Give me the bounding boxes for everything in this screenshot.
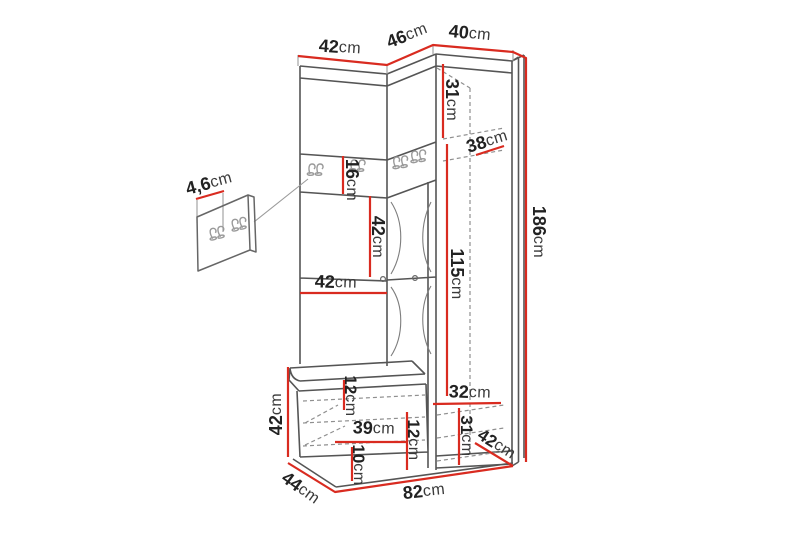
- dimension-labels: 42cm 46cm 40cm 31cm 38cm 186cm 16cm 42cm…: [184, 18, 549, 508]
- dim-label-bench-depth: 44cm: [278, 467, 324, 508]
- dim-label-bench-inner-width: 39cm: [352, 417, 395, 438]
- dim-label-seat-thickness: 12cm: [342, 375, 361, 416]
- dim-label-bench-shelf-height: 10cm: [350, 444, 369, 485]
- dim-label-hook-panel-thickness: 4,6cm: [184, 167, 235, 199]
- dim-label-total-height: 186cm: [529, 206, 549, 258]
- dim-label-total-width: 82cm: [402, 479, 446, 503]
- dim-label-wardrobe-bottom-width: 32cm: [448, 381, 491, 402]
- dim-label-top-left-width: 42cm: [318, 36, 362, 59]
- dim-label-mirror-door-height: 42cm: [368, 216, 388, 258]
- hook-panel-outline: [197, 195, 256, 271]
- dim-label-upper-shelf-height: 31cm: [442, 79, 462, 121]
- coat-hook-icon: [410, 150, 427, 163]
- coat-hook-icon: [307, 164, 323, 175]
- coat-hook-icon: [392, 156, 409, 169]
- dim-label-top-angled-width: 46cm: [384, 18, 431, 52]
- dim-label-mirror-door-width: 42cm: [314, 271, 357, 292]
- hidden-dashed-lines: [303, 68, 506, 461]
- coat-hook-icon: [230, 217, 248, 232]
- diagram-canvas: 42cm 46cm 40cm 31cm 38cm 186cm 16cm 42cm…: [0, 0, 800, 533]
- dim-label-wardrobe-bottom-height: 31cm: [458, 415, 477, 456]
- dim-label-wardrobe-inner-height: 115cm: [447, 248, 467, 299]
- coat-hook-icon: [208, 226, 226, 241]
- dim-label-bench-divider-height: 12cm: [405, 419, 424, 460]
- dim-label-bench-side-height: 42cm: [266, 393, 286, 435]
- dim-label-hook-strip-height: 16cm: [342, 159, 362, 201]
- dim-label-top-right-width: 40cm: [448, 21, 492, 45]
